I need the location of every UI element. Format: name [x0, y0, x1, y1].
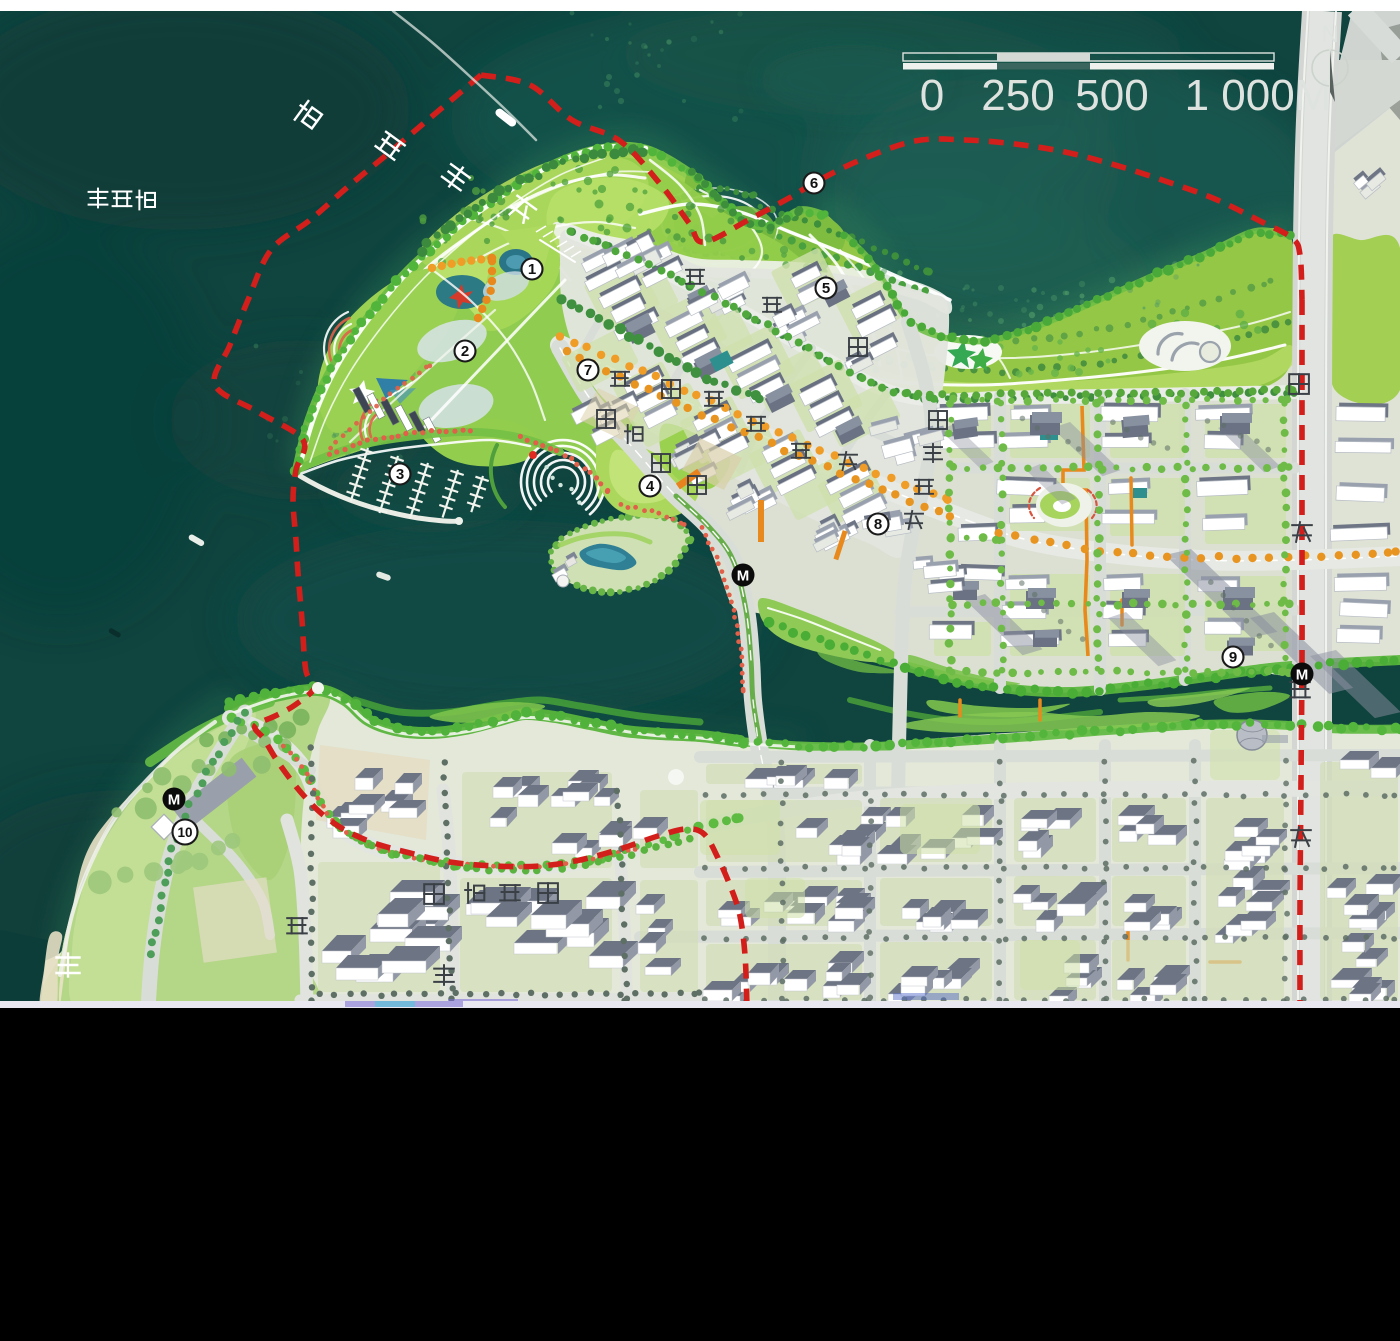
svg-text:6: 6 — [810, 175, 818, 192]
svg-text:7: 7 — [584, 362, 592, 379]
svg-text:10: 10 — [177, 825, 192, 840]
svg-text:3: 3 — [396, 466, 404, 483]
svg-text:9: 9 — [1229, 649, 1237, 666]
svg-text:8: 8 — [874, 516, 882, 533]
svg-text:M: M — [737, 568, 750, 585]
svg-text:1 000M: 1 000M — [1185, 71, 1332, 120]
svg-text:0: 0 — [920, 71, 944, 120]
svg-text:M: M — [1296, 667, 1309, 684]
svg-text:4: 4 — [646, 478, 655, 495]
svg-text:N: N — [1321, 21, 1338, 48]
svg-text:500: 500 — [1075, 71, 1148, 120]
svg-text:1: 1 — [528, 261, 536, 278]
svg-text:5: 5 — [822, 280, 830, 297]
svg-text:250: 250 — [981, 71, 1054, 120]
svg-text:2: 2 — [461, 343, 469, 360]
svg-text:M: M — [168, 792, 181, 809]
